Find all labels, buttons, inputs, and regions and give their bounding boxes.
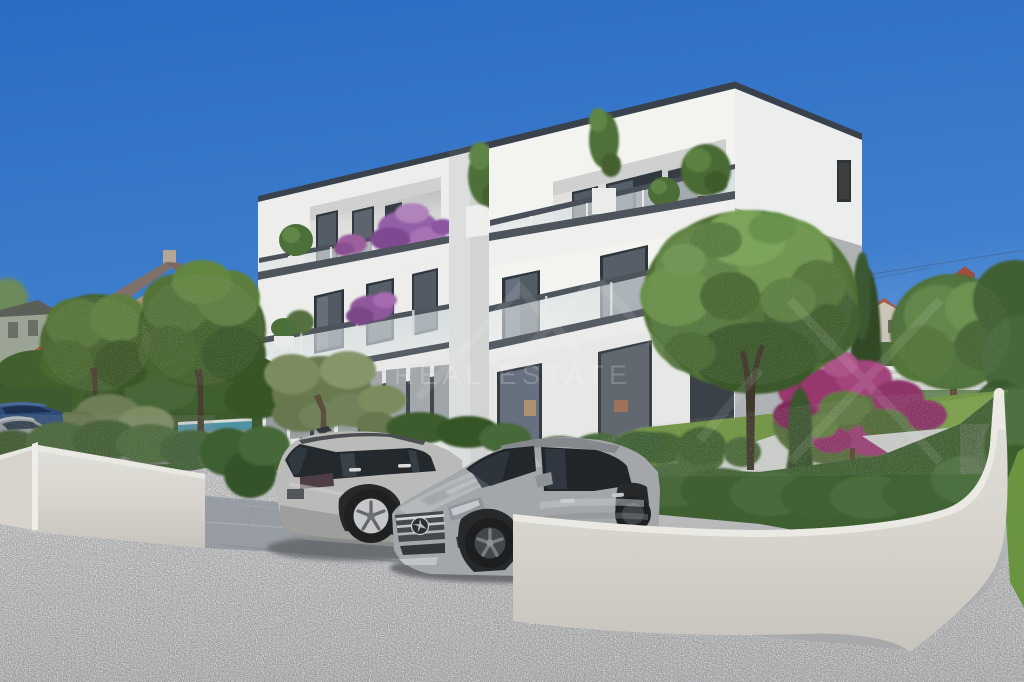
svg-text:REAL ESTATE: REAL ESTATE bbox=[394, 360, 633, 390]
